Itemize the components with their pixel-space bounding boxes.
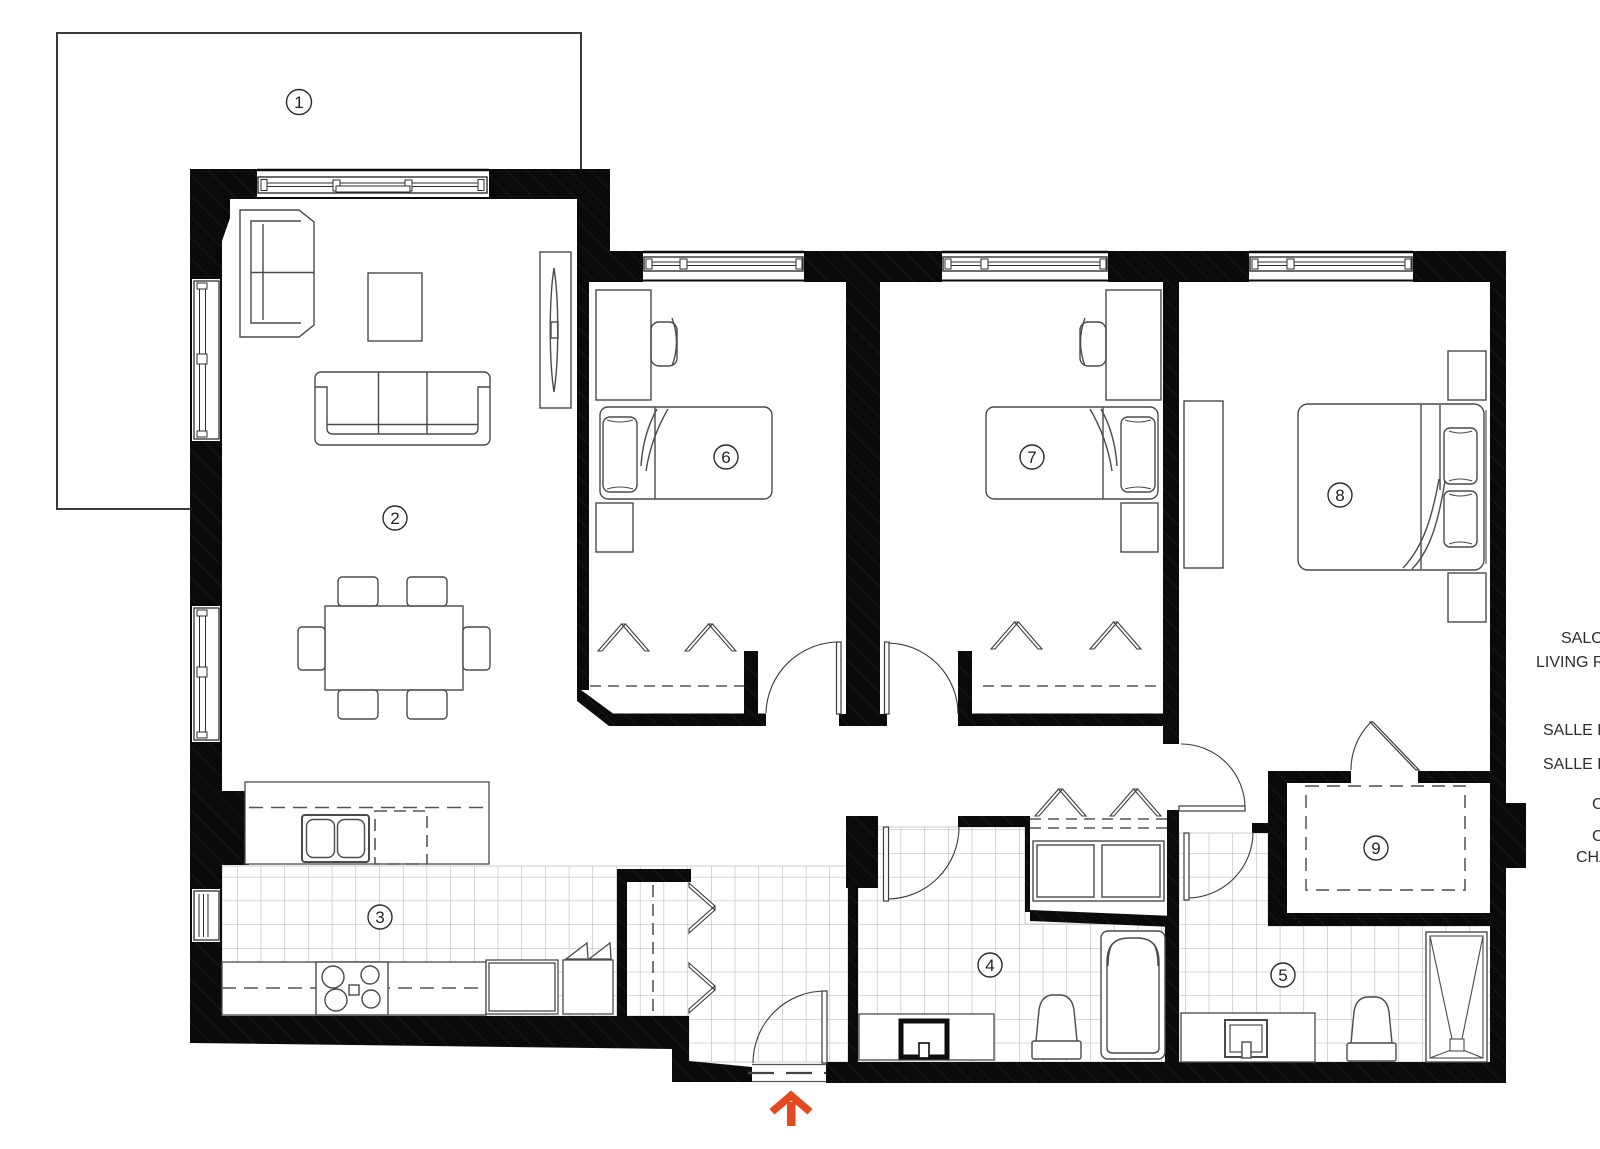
svg-text:8: 8: [1335, 486, 1344, 505]
svg-text:4: 4: [985, 956, 994, 975]
svg-text:1: 1: [294, 93, 303, 112]
svg-text:CHAMBRE: CHAMBRE: [1592, 828, 1600, 845]
svg-text:5: 5: [1278, 966, 1287, 985]
svg-text:3: 3: [375, 908, 384, 927]
svg-text:CHAMBRE: CHAMBRE: [1576, 849, 1600, 866]
svg-text:SALON: SALON: [1561, 630, 1600, 647]
svg-text:CUISINE: CUISINE: [1592, 796, 1600, 813]
svg-text:SALLE DE BAINS: SALLE DE BAINS: [1543, 722, 1600, 739]
svg-text:7: 7: [1027, 448, 1036, 467]
svg-text:9: 9: [1371, 839, 1380, 858]
svg-text:SALLE D'EAU: SALLE D'EAU: [1543, 756, 1600, 773]
svg-text:LIVING ROOM: LIVING ROOM: [1536, 654, 1600, 671]
svg-text:2: 2: [390, 509, 399, 528]
svg-text:6: 6: [721, 448, 730, 467]
